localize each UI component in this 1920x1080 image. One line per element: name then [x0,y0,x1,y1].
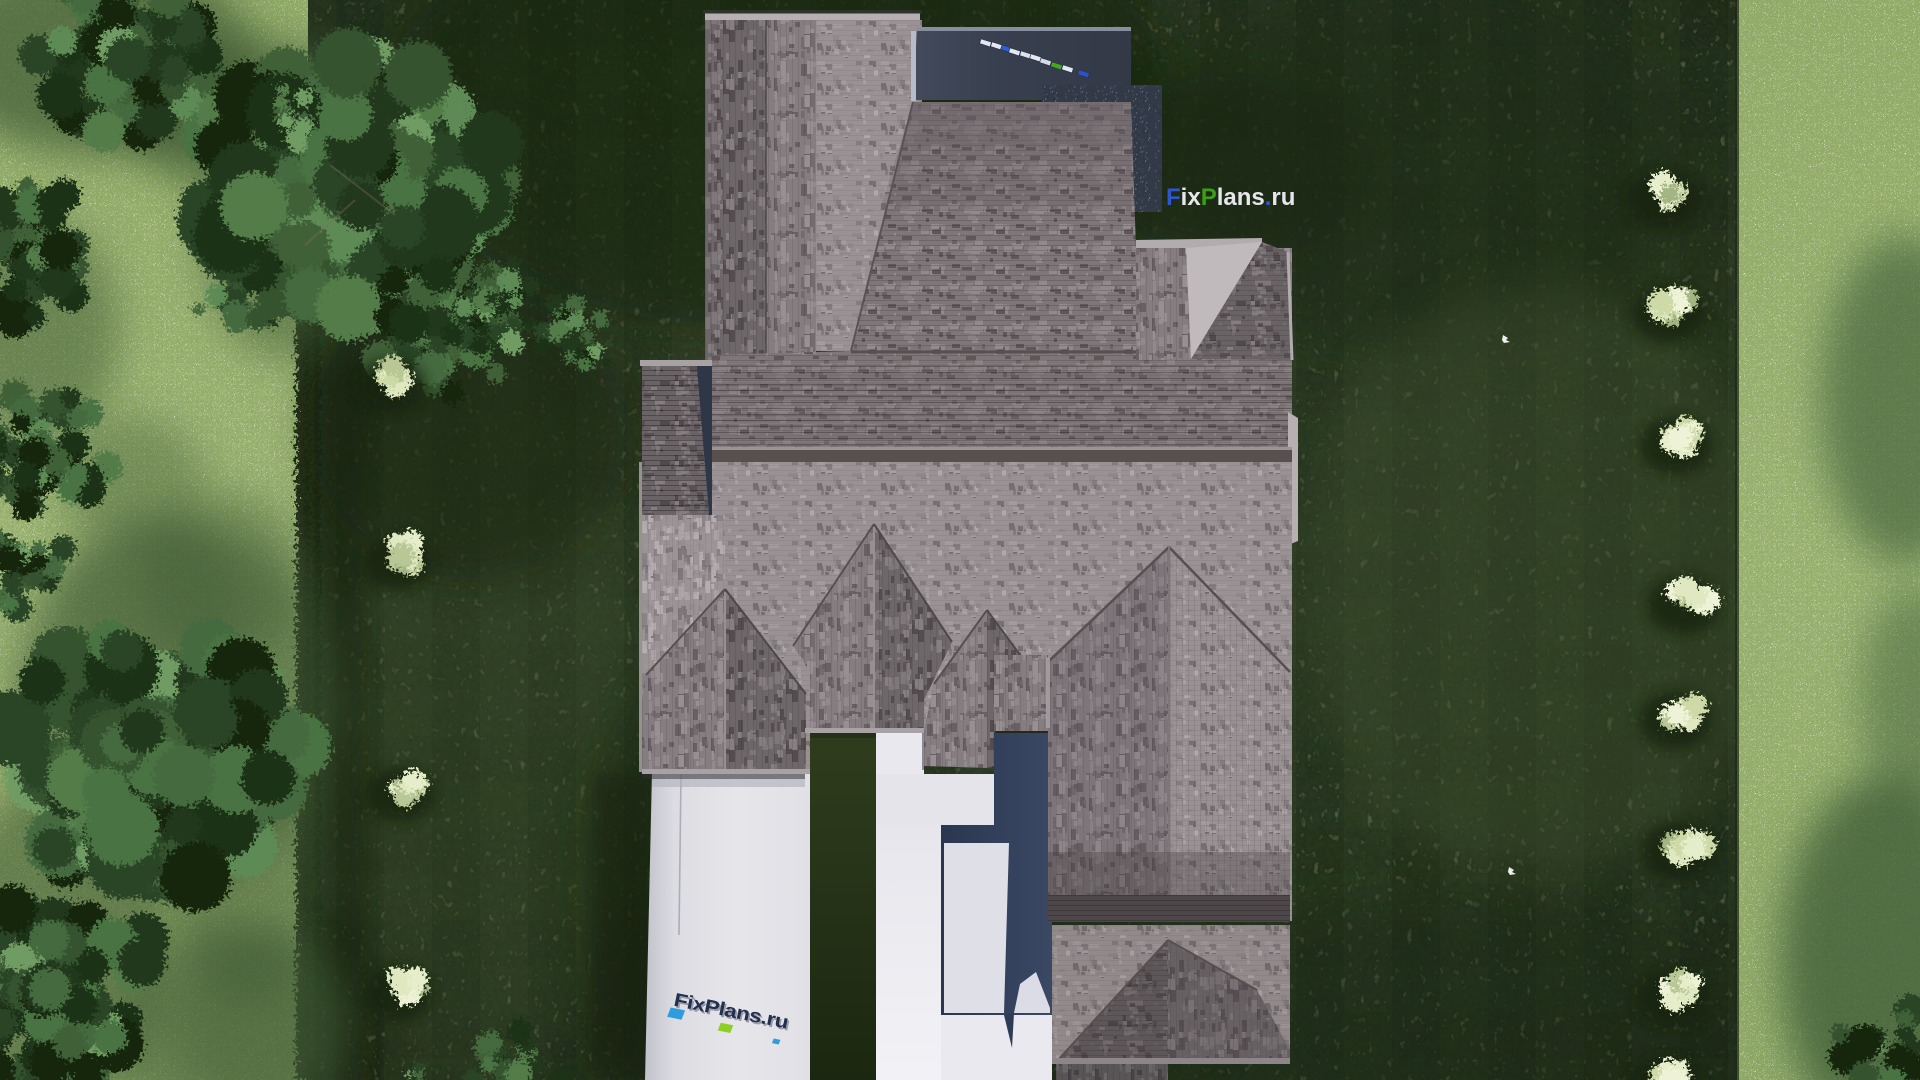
svg-text:FixPlans.ru: FixPlans.ru [1166,184,1295,211]
